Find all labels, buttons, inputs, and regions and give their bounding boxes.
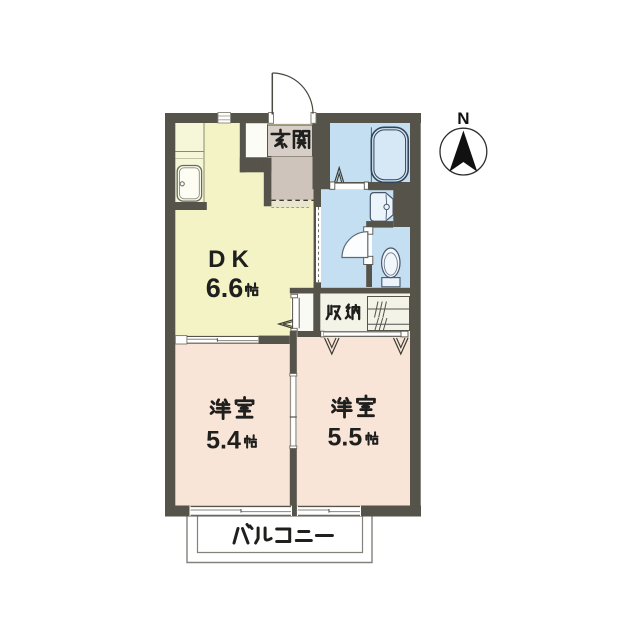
svg-text:DK: DK [208,246,255,273]
svg-text:6.6: 6.6 [206,273,244,303]
svg-text:5.5: 5.5 [328,424,363,452]
svg-text:N: N [457,109,469,128]
svg-text:5.4: 5.4 [206,427,241,455]
